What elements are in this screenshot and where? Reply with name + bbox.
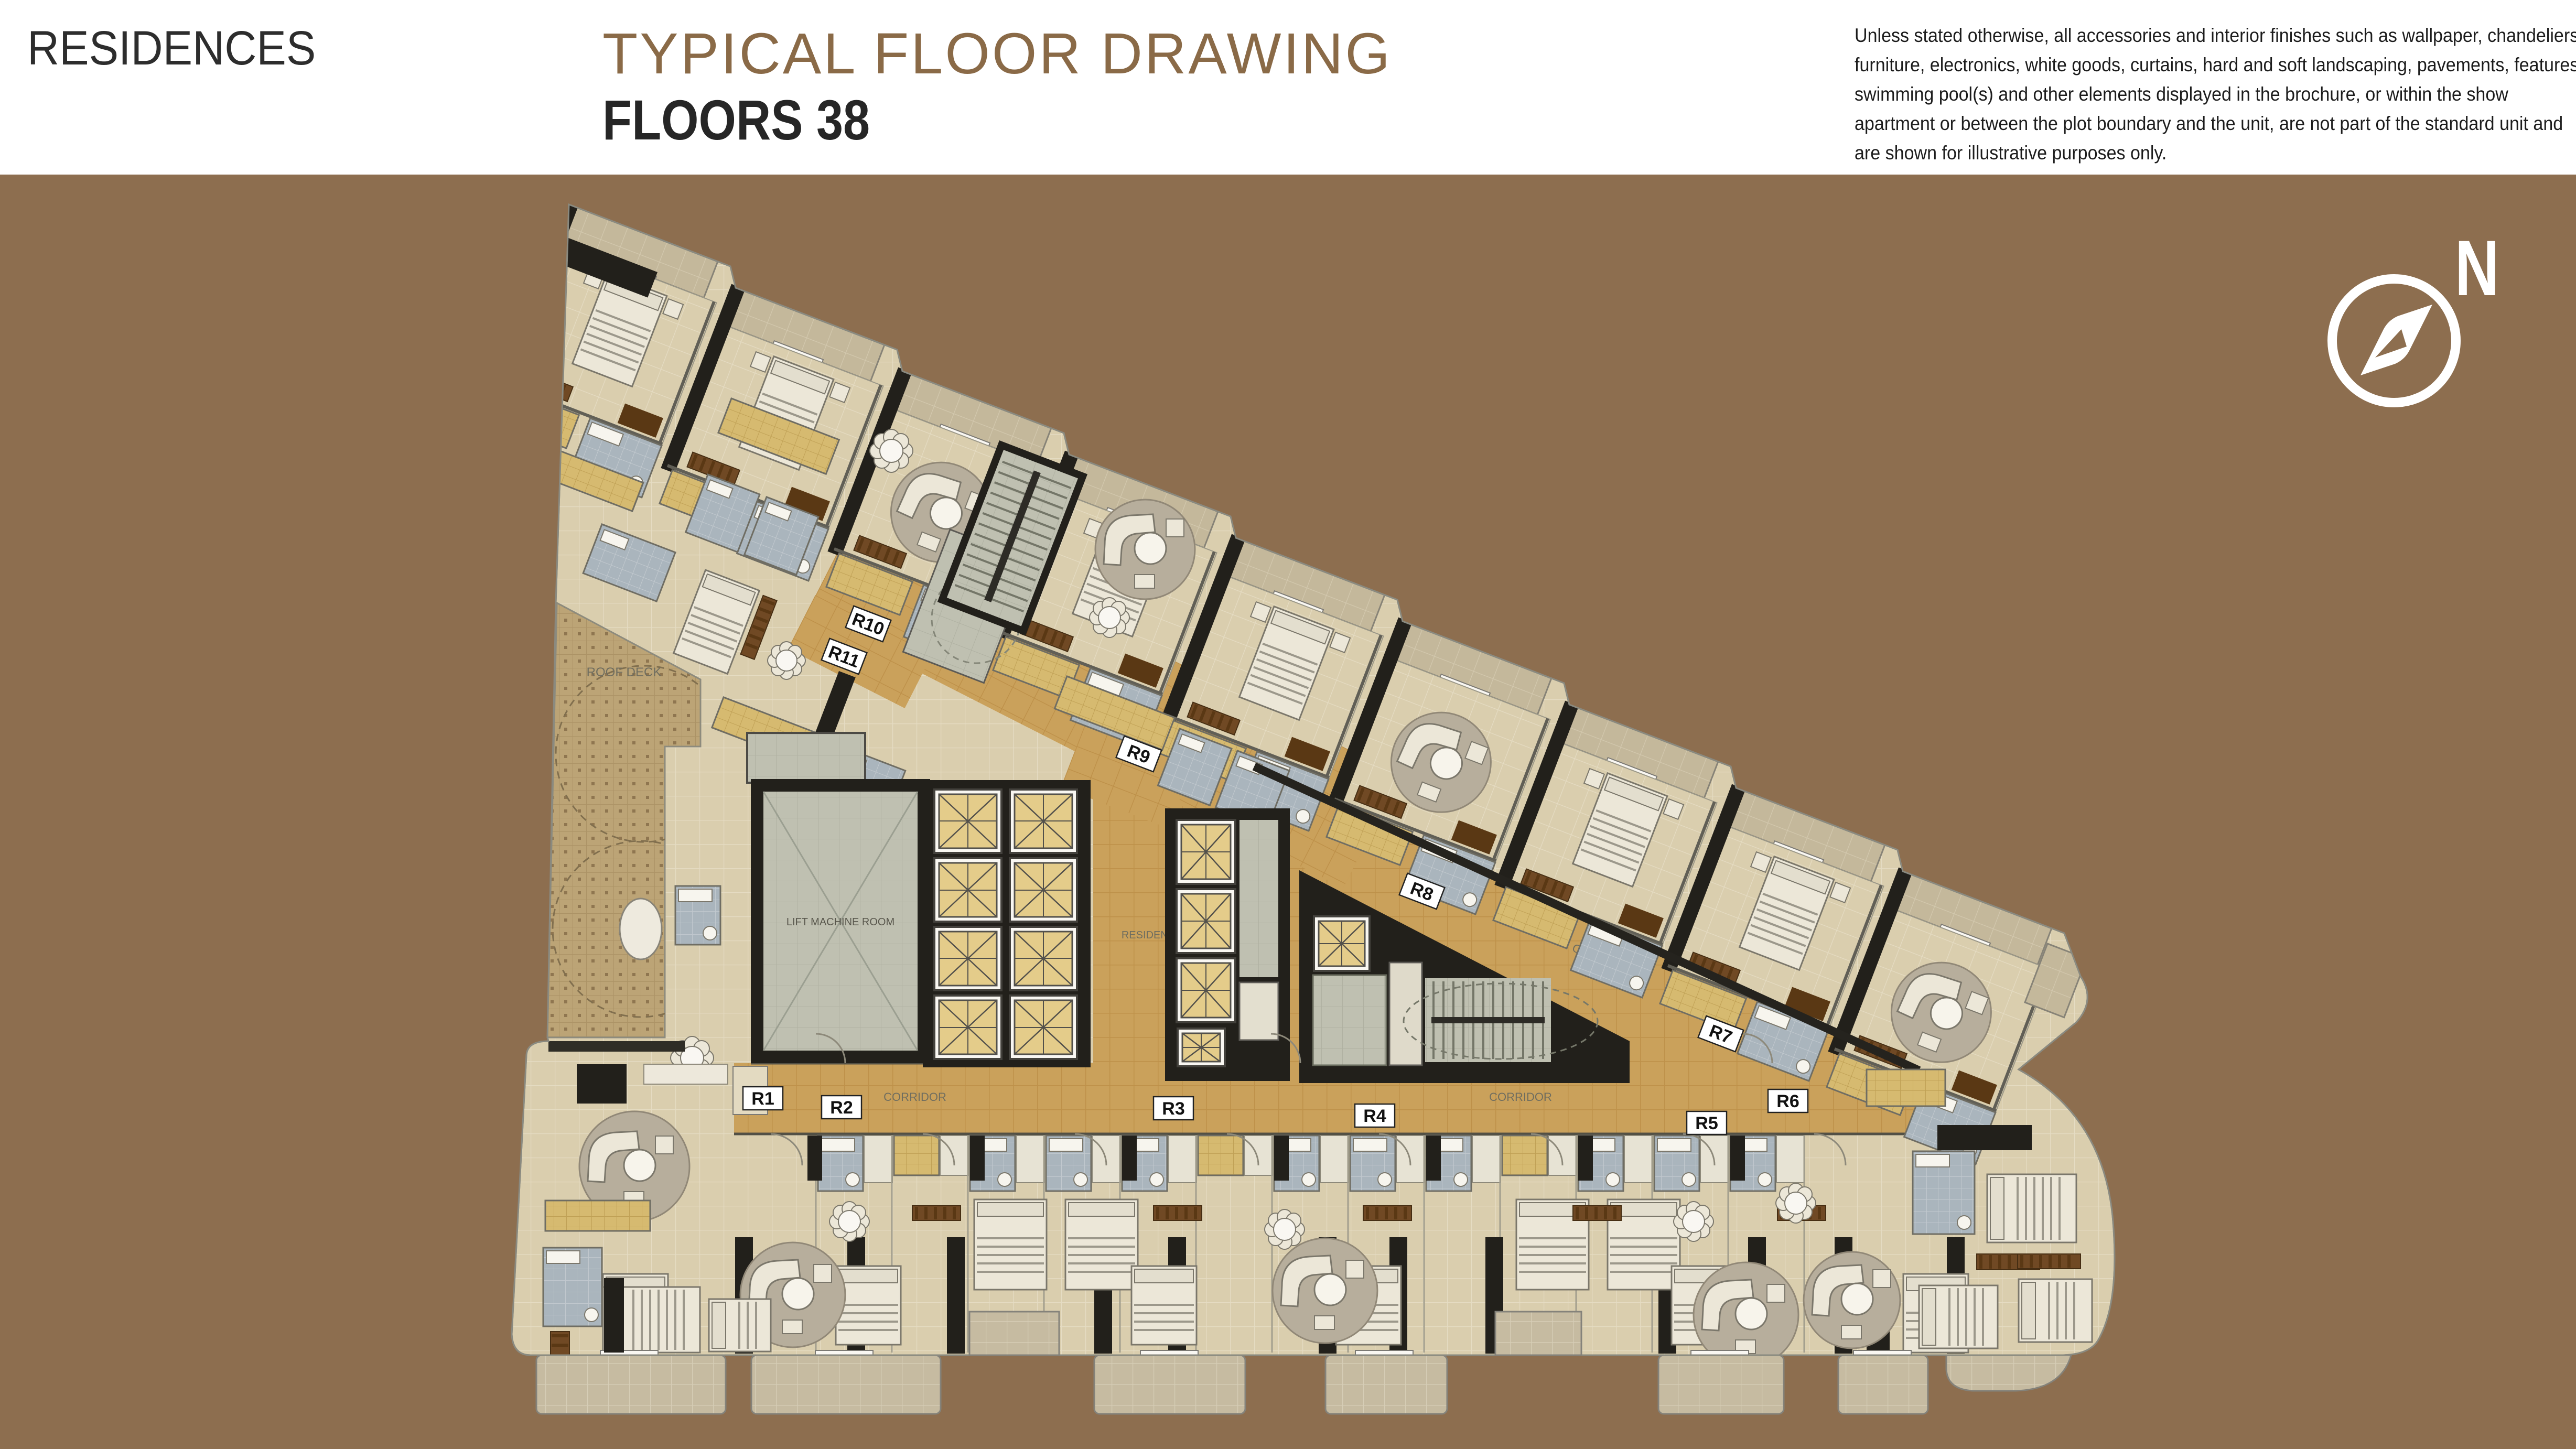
svg-text:R3: R3	[1162, 1099, 1184, 1119]
svg-text:R2: R2	[830, 1098, 853, 1118]
svg-text:N: N	[2455, 224, 2499, 312]
svg-text:R4: R4	[1363, 1106, 1386, 1126]
svg-text:R6: R6	[1776, 1091, 1799, 1111]
svg-text:R5: R5	[1695, 1113, 1718, 1133]
svg-text:R1: R1	[751, 1089, 774, 1109]
